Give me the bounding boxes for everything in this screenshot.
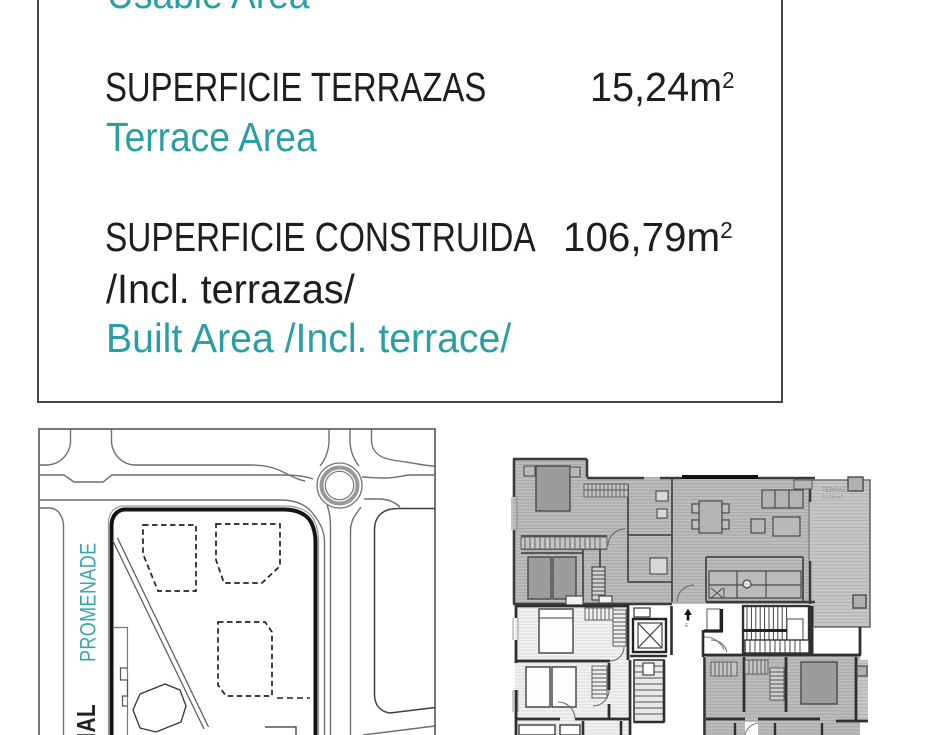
svg-text:DIAGONAL: DIAGONAL (72, 704, 101, 735)
svg-text:PROMENADE: PROMENADE (77, 542, 101, 662)
svg-text:E: E (685, 623, 689, 629)
svg-text:15,24 m2: 15,24 m2 (822, 495, 843, 501)
svg-text:TERRAZA: TERRAZA (822, 488, 850, 494)
